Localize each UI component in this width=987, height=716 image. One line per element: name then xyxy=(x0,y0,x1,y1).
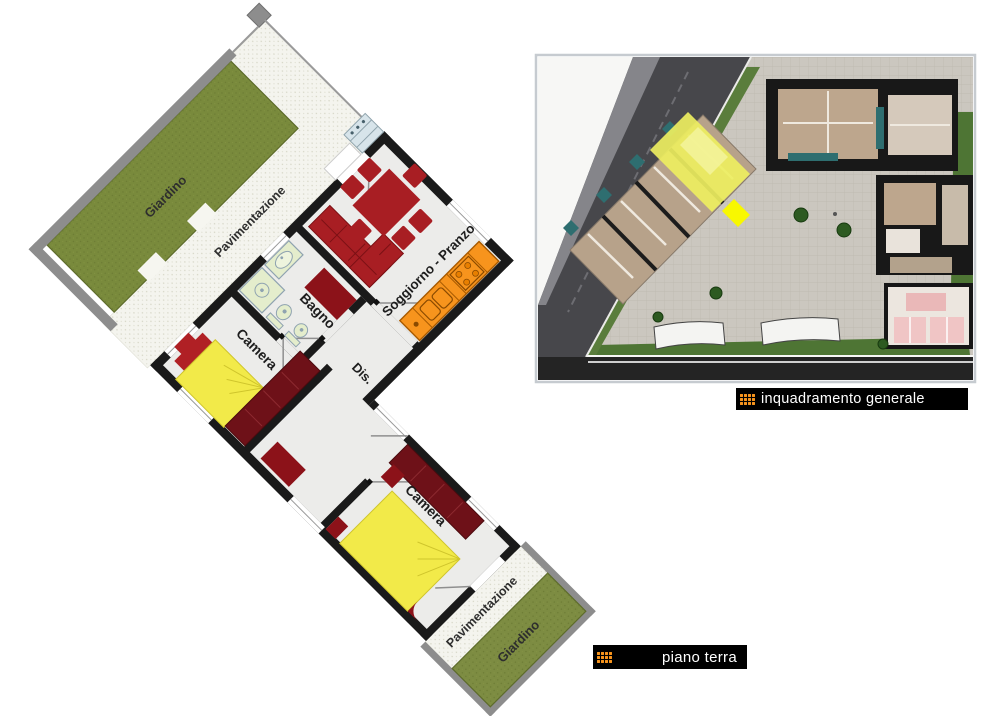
orange-grid-icon xyxy=(597,652,612,663)
inset-top-buildings xyxy=(766,79,958,171)
inset-right-buildings xyxy=(876,175,973,275)
caption-floor-text: piano terra xyxy=(662,649,737,666)
floorplan-drawing: Giardino Pavimentazione Soggiorno - Pran… xyxy=(0,0,987,716)
orange-grid-icon xyxy=(740,394,755,405)
page: Giardino Pavimentazione Soggiorno - Pran… xyxy=(0,0,987,716)
caption-inset: inquadramento generale xyxy=(736,388,968,410)
inset-bottom-street xyxy=(538,357,973,380)
inset-siteplan xyxy=(536,55,975,382)
inset-pink-building xyxy=(884,283,973,349)
caption-floor: piano terra xyxy=(593,645,747,669)
caption-inset-text: inquadramento generale xyxy=(761,391,925,407)
